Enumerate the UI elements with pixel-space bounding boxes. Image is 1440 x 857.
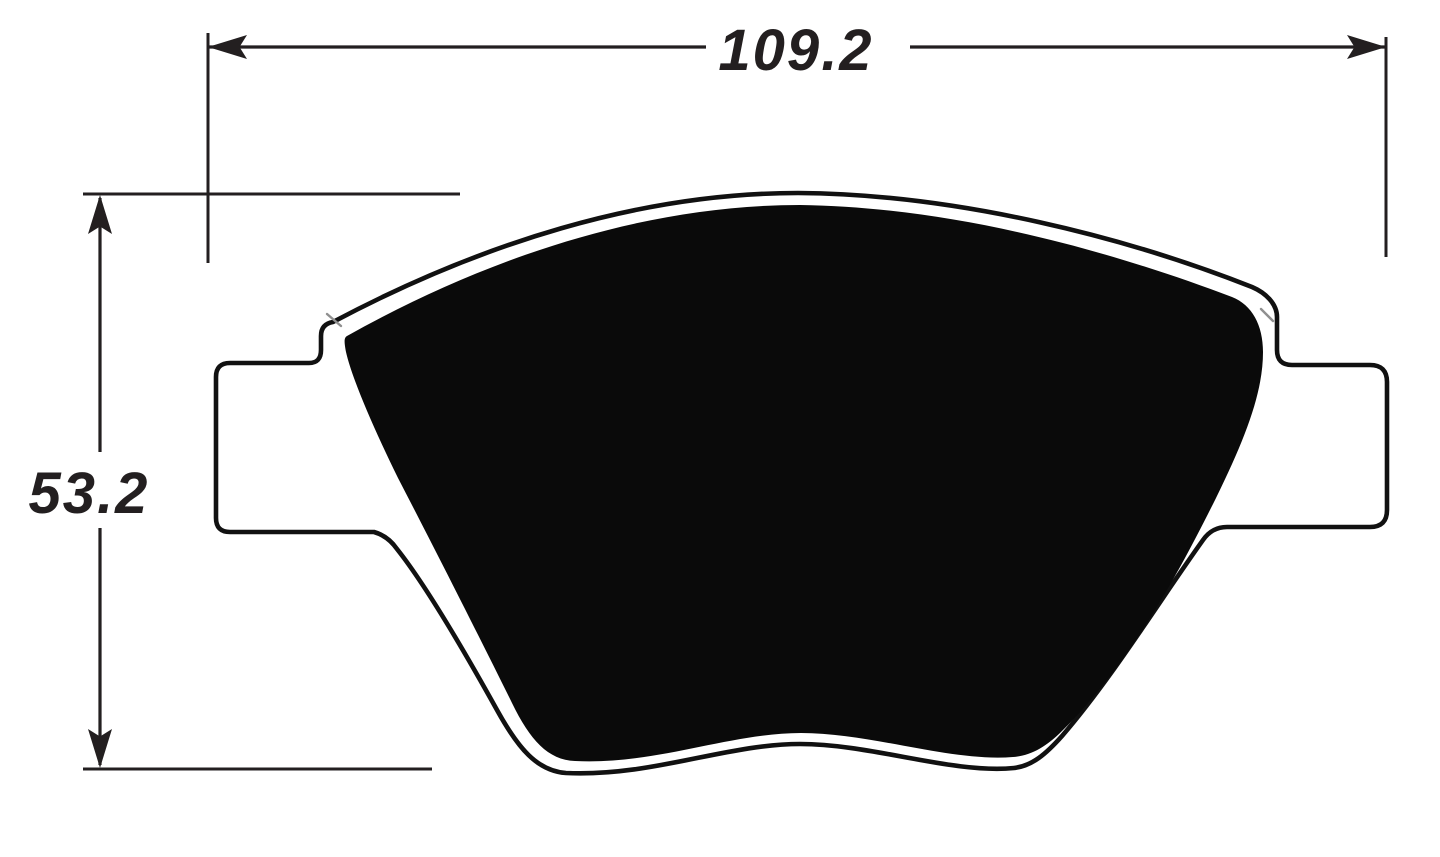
height-dimension-label: 53.2: [29, 461, 150, 526]
drawing-canvas: 109.2 53.2: [0, 0, 1440, 857]
width-dimension-label: 109.2: [718, 18, 873, 83]
brake-pad-dimension-drawing: 109.2 53.2: [0, 0, 1440, 857]
